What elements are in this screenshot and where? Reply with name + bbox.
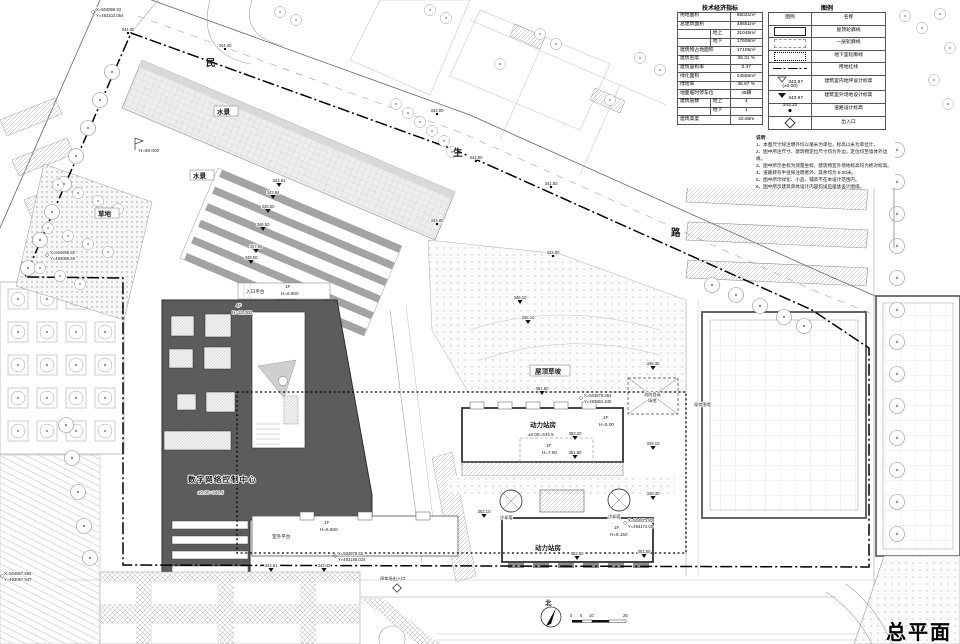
svg-text:347.95: 347.95 [250, 244, 263, 249]
svg-text:342.80: 342.80 [470, 155, 483, 160]
svg-text:352.10: 352.10 [478, 509, 491, 514]
indoor-elevation-icon: 343.97(±0.00) [769, 75, 812, 91]
svg-text:348.50: 348.50 [245, 255, 258, 260]
water-label: 水景 [214, 106, 238, 116]
svg-text:H=32.000: H=32.000 [232, 310, 252, 315]
svg-text:349.10: 349.10 [647, 441, 660, 446]
paved-plaza [100, 572, 440, 644]
note-line: 3、图中所示坐标为测量坐标，建筑物室外场地标高均为绝对标高。 [756, 162, 894, 169]
svg-text:343.94: 343.94 [267, 190, 280, 195]
svg-text:343.80: 343.80 [431, 218, 444, 223]
svg-text:生: 生 [453, 147, 463, 159]
svg-text:Y=493172.00: Y=493172.00 [628, 524, 654, 529]
svg-text:348.30: 348.30 [647, 361, 660, 366]
svg-text:343.61: 343.61 [265, 563, 278, 568]
equipment-yard [448, 462, 675, 512]
svg-text:1F: 1F [285, 284, 291, 289]
svg-text:1F: 1F [324, 520, 330, 525]
svg-text:1F: 1F [546, 443, 552, 448]
svg-text:停车场出入口: 停车场出入口 [380, 575, 405, 582]
info-panel: 技术经济指标 用地面积65021m² 总建筑面积48651m² 地上31045m… [666, 0, 895, 188]
svg-text:346.50: 346.50 [257, 222, 270, 227]
svg-text:4F: 4F [236, 303, 242, 308]
southwest-parcel [0, 455, 100, 644]
svg-text:Y=493188.024: Y=493188.024 [338, 557, 366, 562]
svg-text:水景: 水景 [193, 171, 207, 180]
entry-platform-label: 入口平台 [246, 288, 265, 295]
scale-bar: 0 5 10 25 [570, 613, 628, 623]
note-line: 6、图中所示建筑单体设计内容均详见单体设计图纸。 [756, 183, 894, 190]
water-feature [122, 60, 455, 240]
cooling-label: 冷却塔 [608, 513, 621, 520]
tech-table: 用地面积65021m² 总建筑面积48651m² 地上31045m² 地下176… [677, 12, 763, 125]
svg-text:H=7.90: H=7.90 [542, 450, 557, 455]
svg-text:X=504873.82: X=504873.82 [628, 518, 654, 523]
power2-label: 动力站房 [535, 543, 562, 552]
entrance-icon [784, 117, 795, 128]
note-line: 1、本图尺寸除注明外均以毫米为单位，标高以米为单位计。 [756, 141, 894, 148]
outdoor-elevation-icon: 343.97 [769, 91, 812, 104]
svg-text:0: 0 [570, 613, 573, 618]
svg-text:343.61: 343.61 [273, 178, 286, 183]
svg-text:351.60: 351.60 [536, 386, 549, 391]
site-plan-sheet: 民 生 路 水景 水景 草地 屋顶草坡 数字网络控制中心 ±0.00=344.5… [0, 0, 960, 644]
fire-pad-label: 场地 [648, 397, 657, 404]
basement-outline-icon [774, 52, 806, 61]
svg-text:H=60.000: H=60.000 [139, 148, 159, 153]
wall-label: 现状围墙 [694, 401, 711, 408]
svg-text:342.00: 342.00 [547, 250, 560, 255]
svg-text:353.20: 353.20 [569, 431, 582, 436]
svg-text:343.00: 343.00 [431, 108, 444, 113]
road-elevation-icon: 343.20 [769, 103, 812, 117]
svg-text:X=504867.893: X=504867.893 [4, 571, 32, 576]
svg-text:路: 路 [671, 227, 681, 239]
svg-text:屋顶草坡: 屋顶草坡 [535, 367, 562, 376]
svg-text:草地: 草地 [98, 209, 112, 218]
svg-text:Y=493861.340: Y=493861.340 [584, 399, 612, 404]
fire-pad-label: 消防登高 [644, 391, 661, 398]
notes-block: 说明: 1、本图尺寸除注明外均以毫米为单位，标高以米为单位计。 2、图中所注尺寸… [756, 134, 894, 190]
note-line: 5、图中所示绿化、小品、铺装不在本设计范围内。 [756, 176, 894, 183]
east-plaza [702, 312, 866, 518]
note-line: 2、图中所注尺寸、建筑物定位尺寸均为外边，定位均至墙体外边缘。 [756, 148, 894, 162]
svg-text:1F: 1F [614, 525, 620, 530]
svg-text:Y=493102.054: Y=493102.054 [96, 13, 124, 18]
red-line-icon [773, 68, 807, 69]
svg-text:346.10: 346.10 [514, 295, 527, 300]
legend-table: 图例名称 屋顶轮廓线 一层轮廓线 地下室轮廓线 用地红线 343.97(±0.0… [768, 12, 886, 130]
cooling-label: 冷却塔 [500, 514, 513, 521]
svg-text:H=6.600: H=6.600 [320, 527, 338, 532]
svg-text:25: 25 [623, 613, 628, 618]
svg-text:352.60: 352.60 [571, 551, 584, 556]
svg-text:H=6.600: H=6.600 [281, 291, 299, 296]
svg-text:H=5.00: H=5.00 [599, 422, 614, 427]
svg-text:343.42: 343.42 [318, 563, 331, 568]
main-building-zero: ±0.00=344.5 [198, 490, 224, 495]
svg-text:349.30: 349.30 [647, 491, 660, 496]
svg-text:348.10: 348.10 [522, 315, 535, 320]
svg-text:H=8.150: H=8.150 [610, 532, 628, 537]
outdoor-platform-label: 室外平台 [272, 533, 291, 540]
svg-text:水景: 水景 [217, 107, 231, 116]
svg-text:351.50: 351.50 [638, 549, 651, 554]
svg-text:Y=493065.50: Y=493065.50 [50, 256, 76, 261]
roof-outline-icon [774, 27, 806, 36]
roof-slope-label: 屋顶草坡 [530, 365, 570, 376]
svg-text:X=504878.65: X=504878.65 [338, 551, 364, 556]
grass-label: 草地 [95, 208, 119, 218]
tech-table-title: 技术经济指标 [677, 3, 763, 12]
svg-text:344.40: 344.40 [219, 43, 232, 48]
svg-text:X=504895.50: X=504895.50 [50, 250, 76, 255]
flag-marker: H=60.000 [135, 138, 159, 153]
svg-text:Y=493087.947: Y=493087.947 [4, 577, 32, 582]
svg-text:351.80: 351.80 [569, 450, 582, 455]
svg-text:345.50: 345.50 [262, 204, 275, 209]
notes-title: 说明: [756, 134, 894, 141]
far-east-plaza [876, 296, 960, 556]
svg-text:5: 5 [580, 613, 583, 618]
svg-text:344.60: 344.60 [122, 27, 135, 32]
legend-title: 图例 [768, 3, 886, 12]
svg-text:北: 北 [545, 598, 552, 607]
svg-text:X=504876.364: X=504876.364 [584, 393, 612, 398]
svg-text:民: 民 [206, 58, 216, 69]
power1-zero: ±0.00=344.5 [528, 432, 554, 437]
north-arrow-icon: 北 [541, 598, 561, 627]
main-building-label: 数字网络控制中心 [188, 474, 257, 484]
svg-text:341.50: 341.50 [545, 181, 558, 186]
sheet-title: 总平面图 [886, 616, 960, 644]
svg-text:X=504898.93: X=504898.93 [96, 7, 122, 12]
note-line: 4、道路转弯半径除注明者外，其余均为 6.00米。 [756, 169, 894, 176]
parking-entrance: 停车场出入口 [380, 575, 405, 592]
svg-text:10: 10 [589, 613, 594, 618]
first-floor-outline-icon [774, 39, 806, 48]
svg-text:1F: 1F [603, 415, 609, 420]
power1-label: 动力站房 [530, 420, 557, 429]
water-label: 水景 [190, 170, 214, 180]
